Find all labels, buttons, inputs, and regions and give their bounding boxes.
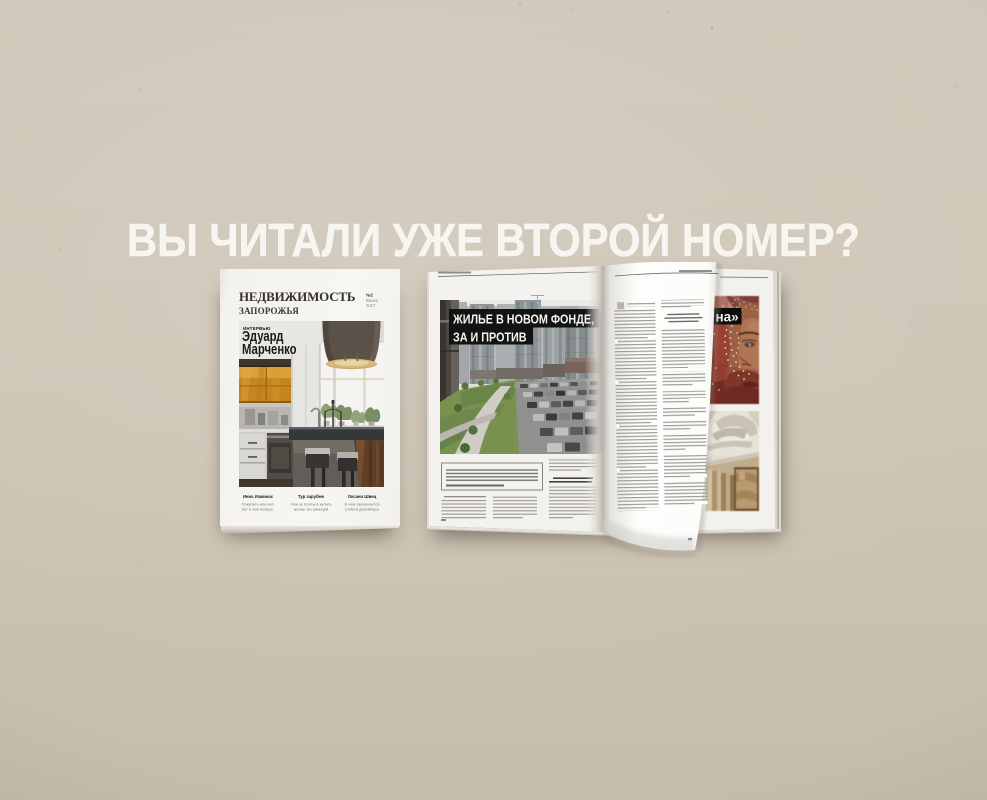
svg-text:ЗА И ПРОТИВ: ЗА И ПРОТИВ — [453, 330, 527, 345]
svg-text:ЖИЛЬЕ В НОВОМ ФОНДЕ,: ЖИЛЬЕ В НОВОМ ФОНДЕ, — [452, 312, 594, 327]
svg-text:на»: на» — [716, 310, 739, 325]
